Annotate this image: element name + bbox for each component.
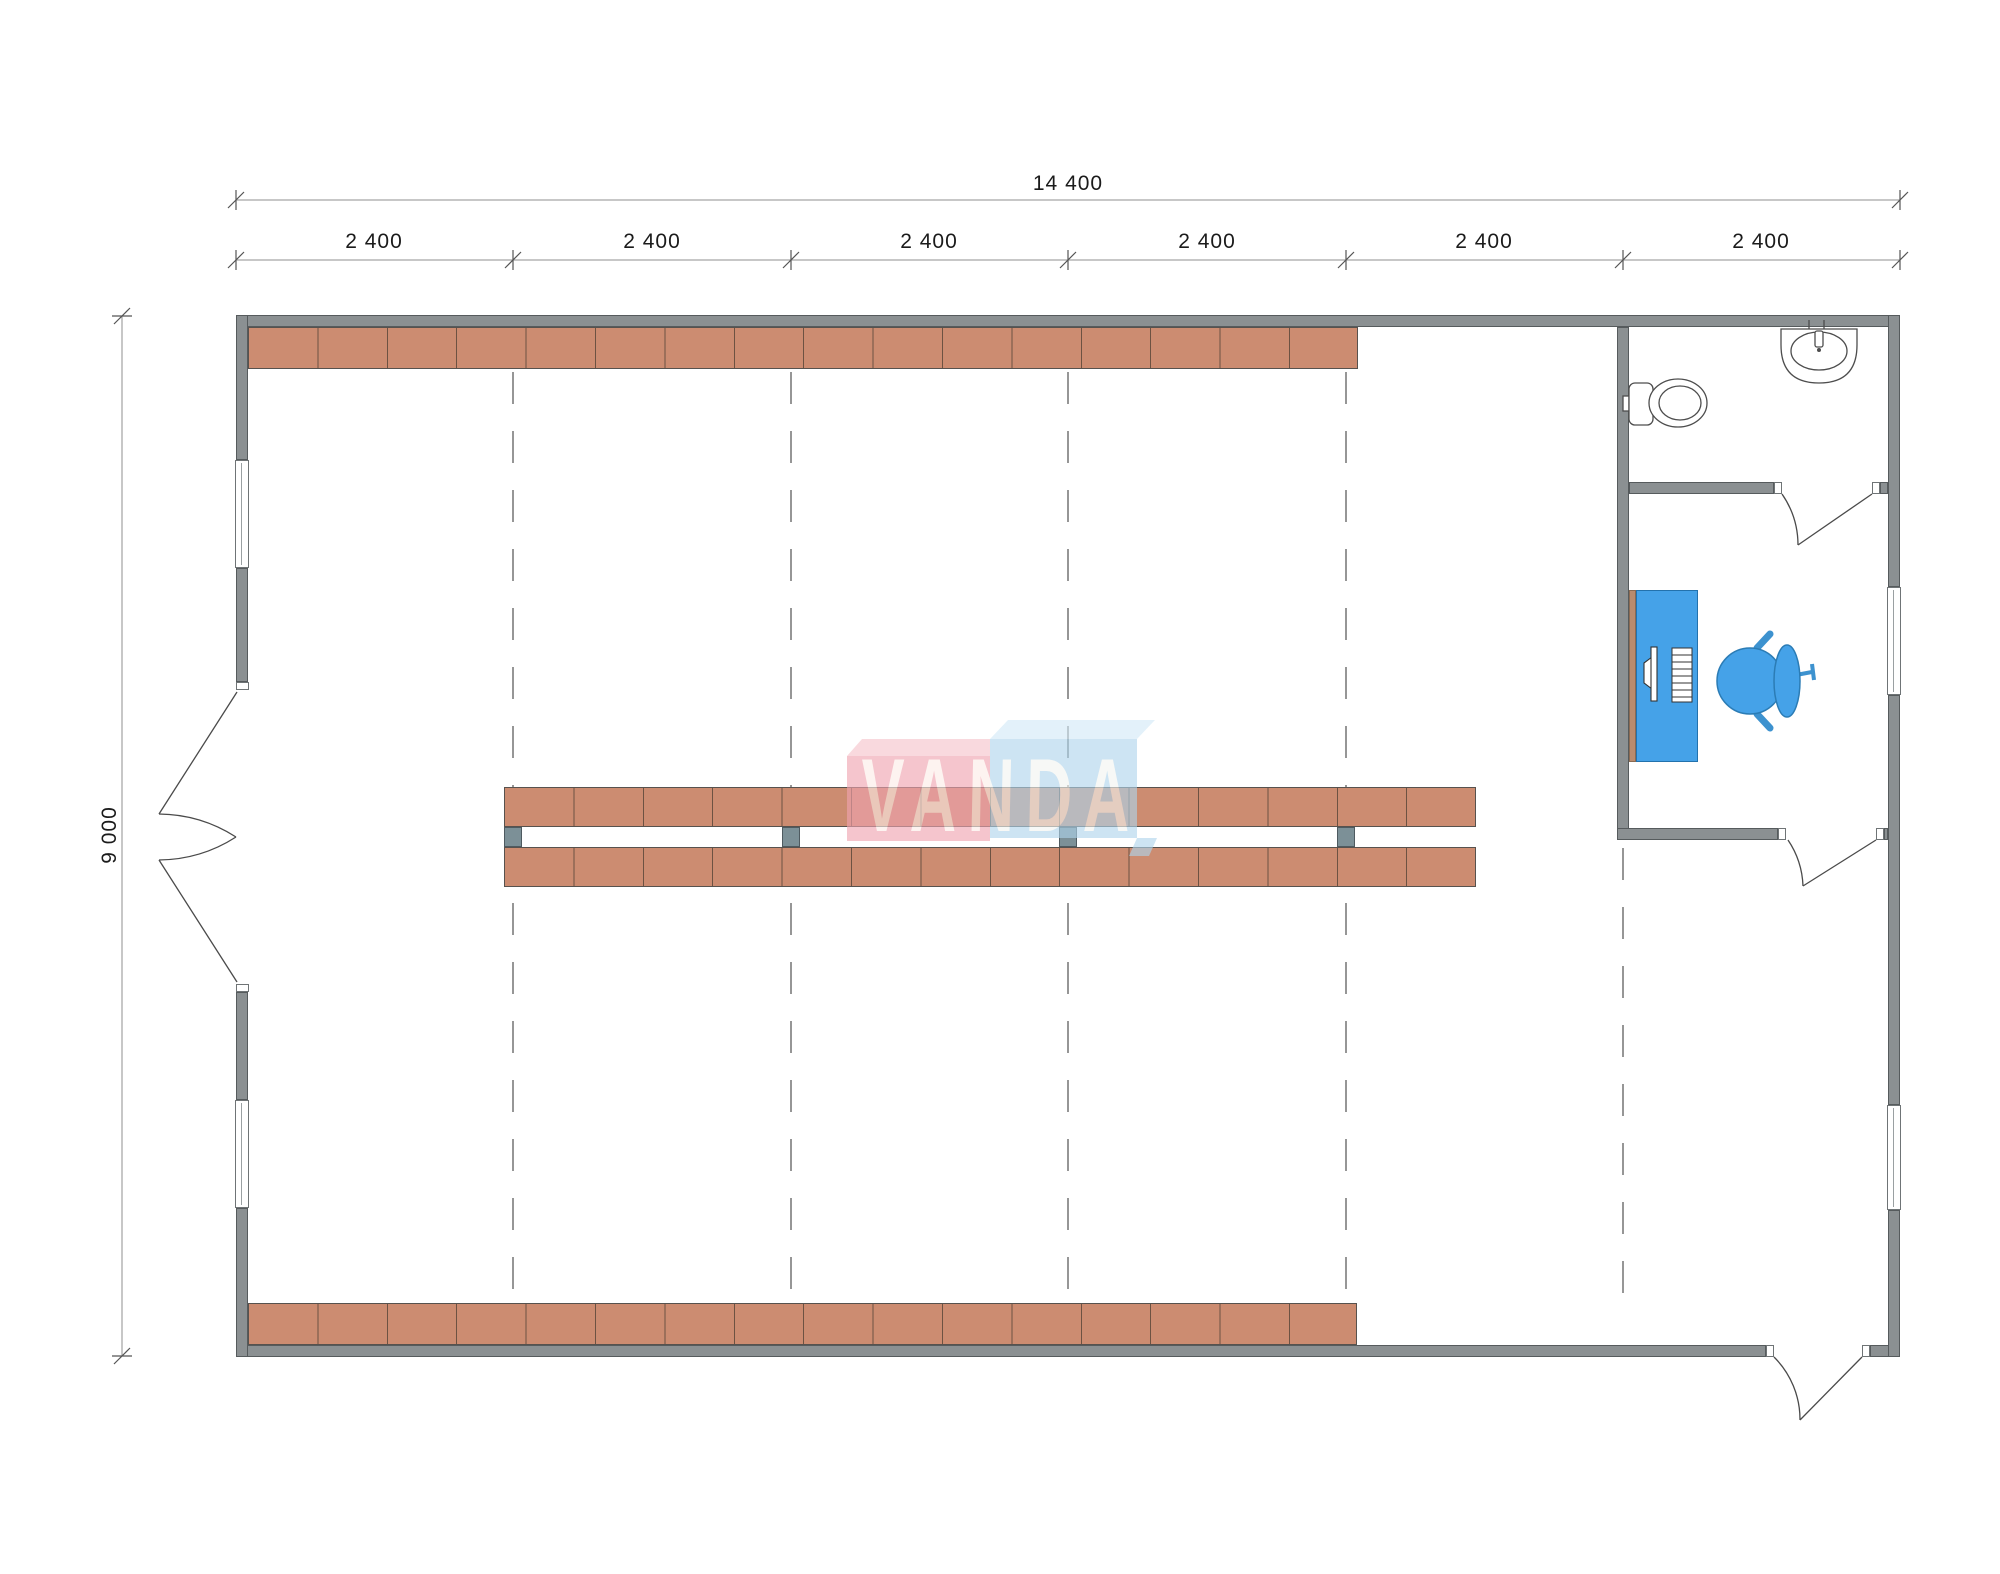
office-chair-icon [1717,634,1814,728]
watermark-text: VANDA [860,744,1143,848]
floor-plan-canvas: 14 400 2 400 2 400 2 400 2 400 2 400 2 4… [0,0,2000,1574]
keyboard-icon [1672,648,1692,702]
door-bathroom [1782,494,1872,545]
vanda-watermark: VANDA [846,718,1166,868]
door-exterior-bottom [1774,1357,1862,1420]
monitor-icon [1644,647,1657,701]
door-office [1788,840,1876,886]
sink-icon [1781,320,1857,383]
double-door-left [159,692,237,982]
toilet-icon [1623,379,1707,427]
